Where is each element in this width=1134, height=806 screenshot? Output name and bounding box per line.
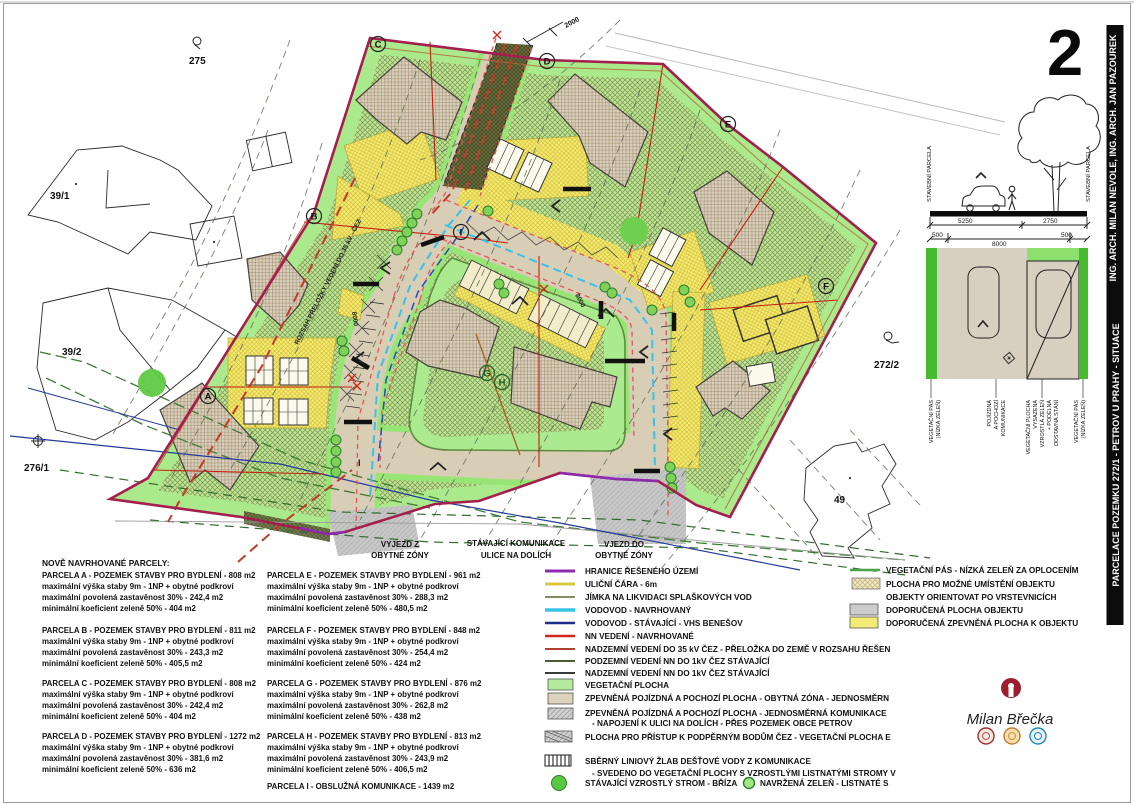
- svg-text:G: G: [483, 369, 490, 380]
- svg-text:VEGETAČNÍ PÁS: VEGETAČNÍ PÁS: [1073, 400, 1080, 443]
- svg-text:(NÍZKÁ ZELEŇ): (NÍZKÁ ZELEŇ): [935, 400, 942, 439]
- svg-text:39/2: 39/2: [62, 347, 82, 358]
- svg-text:VYSAZENÁ: VYSAZENÁ: [1032, 400, 1039, 429]
- svg-text:500: 500: [932, 232, 943, 239]
- svg-text:I: I: [460, 228, 463, 239]
- svg-text:E: E: [725, 120, 731, 131]
- svg-text:H: H: [499, 378, 506, 389]
- svg-text:maximální povolená zastavěnost: maximální povolená zastavěnost 30% - 243…: [42, 648, 224, 657]
- svg-text:NN VEDENÍ - NAVRHOVANÉ: NN VEDENÍ - NAVRHOVANÉ: [585, 631, 694, 641]
- svg-text:POJÍZDNÁ: POJÍZDNÁ: [986, 400, 993, 427]
- svg-text:maximální výška staby 9m - 1NP: maximální výška staby 9m - 1NP + obytné …: [42, 637, 235, 646]
- svg-text:ZPEVNĚNÁ POJÍZDNÁ A POCHOZÍ PL: ZPEVNĚNÁ POJÍZDNÁ A POCHOZÍ PLOCHA - JED…: [585, 707, 887, 718]
- svg-text:maximální povolená zastavěnost: maximální povolená zastavěnost 30% - 243…: [267, 754, 449, 763]
- svg-text:STÁVAJÍCÍ VZROSTLÝ STROM - BŘÍ: STÁVAJÍCÍ VZROSTLÝ STROM - BŘÍZA: [585, 777, 737, 788]
- svg-text:VJEZD DO: VJEZD DO: [604, 540, 644, 549]
- svg-text:SBĚRNÝ LINIOVÝ ŽLAB DEŠŤOVÉ VO: SBĚRNÝ LINIOVÝ ŽLAB DEŠŤOVÉ VODY Z KOMUN…: [585, 755, 811, 766]
- svg-text:- NAPOJENÍ K ULICI NA DOLÍCH -: - NAPOJENÍ K ULICI NA DOLÍCH - PŘES POZE…: [592, 717, 853, 728]
- svg-text:maximální výška staby 9m - 1NP: maximální výška staby 9m - 1NP + obytné …: [267, 637, 460, 646]
- svg-text:PARCELA A - POZEMEK STAVBY PRO: PARCELA A - POZEMEK STAVBY PRO BYDLENÍ -…: [42, 571, 256, 580]
- svg-text:276/1: 276/1: [24, 463, 49, 474]
- svg-text:F: F: [823, 282, 829, 293]
- svg-text:PARCELA G - POZEMEK STAVBY PRO: PARCELA G - POZEMEK STAVBY PRO BYDLENÍ -…: [267, 679, 482, 688]
- svg-text:49: 49: [834, 495, 846, 506]
- svg-text:DOPORUČENÁ PLOCHA OBJEKTU: DOPORUČENÁ PLOCHA OBJEKTU: [886, 604, 1023, 615]
- svg-text:minimální koeficient zeleně 50: minimální koeficient zeleně 50% - 404 m2: [42, 712, 197, 721]
- svg-text:PARCELA I - OBSLUŽNÁ KOMUNIKAC: PARCELA I - OBSLUŽNÁ KOMUNIKACE - 1439 m…: [267, 782, 455, 791]
- svg-text:PARCELA H - POZEMEK STAVBY PRO: PARCELA H - POZEMEK STAVBY PRO BYDLENÍ -…: [267, 732, 482, 741]
- svg-text:minimální koeficient zeleně 50: minimální koeficient zeleně 50% - 438 m2: [267, 712, 422, 721]
- svg-text:maximální výška staby 9m - 1NP: maximální výška staby 9m - 1NP + obytné …: [267, 690, 460, 699]
- svg-text:minimální koeficient zeleně 50: minimální koeficient zeleně 50% - 405,5 …: [42, 659, 203, 668]
- svg-text:PLOCHA PRO PŘÍSTUP K PODPĚRNÝM: PLOCHA PRO PŘÍSTUP K PODPĚRNÝM BODŮM ČEZ…: [585, 731, 891, 742]
- svg-text:500: 500: [1061, 232, 1072, 239]
- svg-text:8000: 8000: [992, 241, 1007, 248]
- svg-text:2750: 2750: [1043, 218, 1058, 225]
- svg-text:maximální výška staby 9m - 1NP: maximální výška staby 9m - 1NP + obytné …: [267, 582, 460, 591]
- svg-text:OBYTNÉ ZÓNY: OBYTNÉ ZÓNY: [595, 551, 653, 560]
- svg-text:I: I: [358, 458, 361, 468]
- svg-text:39/1: 39/1: [50, 191, 70, 202]
- svg-text:VYJEZD Z: VYJEZD Z: [381, 540, 419, 549]
- svg-text:maximální výška staby 9m - 1NP: maximální výška staby 9m - 1NP + obytné …: [42, 690, 235, 699]
- svg-text:minimální koeficient zeleně 50: minimální koeficient zeleně 50% - 424 m2: [267, 659, 422, 668]
- svg-text:272/2: 272/2: [874, 360, 899, 371]
- svg-text:D: D: [544, 57, 551, 68]
- svg-text:maximální povolená zastavěnost: maximální povolená zastavěnost 30% - 262…: [267, 701, 449, 710]
- svg-text:PARCELA D - POZEMEK STAVBY PRO: PARCELA D - POZEMEK STAVBY PRO BYDLENÍ -…: [42, 732, 261, 741]
- svg-text:ZPEVNĚNÁ POJÍZDNÁ A POCHOZÍ PL: ZPEVNĚNÁ POJÍZDNÁ A POCHOZÍ PLOCHA - OBY…: [585, 692, 889, 703]
- svg-text:minimální koeficient zeleně 50: minimální koeficient zeleně 50% - 480,5 …: [267, 604, 428, 613]
- svg-text:2: 2: [1047, 16, 1083, 89]
- svg-text:ULICE NA DOLÍCH: ULICE NA DOLÍCH: [481, 551, 552, 560]
- svg-text:minimální koeficient zeleně 50: minimální koeficient zeleně 50% - 406,5 …: [267, 765, 428, 774]
- svg-text:minimální koeficient zeleně 50: minimální koeficient zeleně 50% - 404 m2: [42, 604, 197, 613]
- svg-text:VEGETAČNÍ PLOCHA: VEGETAČNÍ PLOCHA: [585, 679, 669, 690]
- svg-text:NOVĚ NAVRHOVANÉ PARCELY:: NOVĚ NAVRHOVANÉ PARCELY:: [42, 557, 170, 568]
- svg-text:A POCHOZÍ: A POCHOZÍ: [993, 400, 1000, 430]
- svg-text:PARCELA E - POZEMEK STAVBY PRO: PARCELA E - POZEMEK STAVBY PRO BYDLENÍ -…: [267, 571, 481, 580]
- svg-text:minimální koeficient zeleně 50: minimální koeficient zeleně 50% - 636 m2: [42, 765, 197, 774]
- svg-text:JÍMKA NA LIKVIDACI SPLAŠKOVÝCH: JÍMKA NA LIKVIDACI SPLAŠKOVÝCH VOD: [585, 591, 752, 602]
- svg-text:NAVRŽENÁ ZELEŇ - LISTNATÉ S: NAVRŽENÁ ZELEŇ - LISTNATÉ S: [760, 777, 889, 788]
- svg-text:STAVEBNÍ PARCELA: STAVEBNÍ PARCELA: [926, 146, 933, 202]
- svg-text:PLOCHA PRO MOŽNÉ UMÍSTĚNÍ OBJE: PLOCHA PRO MOŽNÉ UMÍSTĚNÍ OBJEKTU: [886, 578, 1055, 589]
- svg-text:+ PODÉLNÁ: + PODÉLNÁ: [1046, 400, 1053, 431]
- svg-text:VEGETAČNÍ PÁS: VEGETAČNÍ PÁS: [928, 400, 935, 443]
- svg-text:maximální výška staby 9m - 1NP: maximální výška staby 9m - 1NP + obytné …: [267, 743, 460, 752]
- svg-text:275: 275: [189, 56, 206, 67]
- svg-text:- SVEDENO DO VEGETAČNÍ PLOCHY: - SVEDENO DO VEGETAČNÍ PLOCHY S VZROSTLÝ…: [592, 767, 896, 778]
- svg-text:NADZEMNÍ VEDENÍ DO 35 kV ČEZ -: NADZEMNÍ VEDENÍ DO 35 kV ČEZ - PŘELOŽKA …: [585, 643, 890, 654]
- svg-text:Milan Břečka: Milan Břečka: [967, 711, 1054, 728]
- svg-text:maximální povolená zastavěnost: maximální povolená zastavěnost 30% - 242…: [42, 701, 224, 710]
- svg-text:C: C: [375, 40, 382, 51]
- svg-text:ULIČNÍ ČÁRA - 6m: ULIČNÍ ČÁRA - 6m: [585, 578, 657, 589]
- svg-text:PARCELA B - POZEMEK STAVBY PRO: PARCELA B - POZEMEK STAVBY PRO BYDLENÍ -…: [42, 626, 256, 635]
- svg-text:maximální povolená zastavěnost: maximální povolená zastavěnost 30% - 242…: [42, 593, 224, 602]
- svg-text:PARCELA C - POZEMEK STAVBY PRO: PARCELA C - POZEMEK STAVBY PRO BYDLENÍ -…: [42, 679, 257, 688]
- svg-text:maximální povolená zastavěnost: maximální povolená zastavěnost 30% - 254…: [267, 648, 449, 657]
- svg-text:NADZEMNÍ VEDENÍ NN DO 1kV ČEZ: NADZEMNÍ VEDENÍ NN DO 1kV ČEZ STÁVAJÍCÍ: [585, 667, 770, 678]
- svg-text:(NÍZKÁ ZELEŇ): (NÍZKÁ ZELEŇ): [1080, 400, 1087, 439]
- svg-text:A: A: [205, 392, 212, 403]
- svg-text:PODZEMNÍ VEDENÍ NN DO 1kV ČEZ: PODZEMNÍ VEDENÍ NN DO 1kV ČEZ STÁVAJÍCÍ: [585, 655, 770, 666]
- svg-text:PARCELA F - POZEMEK STAVBY PRO: PARCELA F - POZEMEK STAVBY PRO BYDLENÍ -…: [267, 626, 481, 635]
- svg-text:maximální výška staby 9m - 1NP: maximální výška staby 9m - 1NP + obytné …: [42, 743, 235, 752]
- svg-text:HRANICE ŘEŠENÉHO ÚZEMÍ: HRANICE ŘEŠENÉHO ÚZEMÍ: [585, 565, 699, 576]
- svg-text:STÁVAJÍCÍ KOMUNIKACE: STÁVAJÍCÍ KOMUNIKACE: [467, 539, 566, 548]
- svg-text:5250: 5250: [958, 218, 973, 225]
- svg-text:maximální výška staby 9m - 1NP: maximální výška staby 9m - 1NP + obytné …: [42, 582, 235, 591]
- svg-text:VEGETAČNÍ PÁS - NÍZKÁ ZELEŇ ZA: VEGETAČNÍ PÁS - NÍZKÁ ZELEŇ ZA OPLOCENÍM: [886, 564, 1079, 575]
- svg-text:VODOVOD - STÁVAJÍCÍ - VHS BENE: VODOVOD - STÁVAJÍCÍ - VHS BENEŠOV: [585, 617, 743, 628]
- svg-text:VZROSTLÁ ZELEŇ: VZROSTLÁ ZELEŇ: [1039, 400, 1046, 447]
- svg-text:ING. ARCH. MILAN NEVOLE, ING.: ING. ARCH. MILAN NEVOLE, ING. ARCH. JAN …: [1108, 34, 1118, 281]
- svg-text:maximální povolená zastavěnost: maximální povolená zastavěnost 30% - 288…: [267, 593, 449, 602]
- svg-text:STAVEBNÍ PARCELA: STAVEBNÍ PARCELA: [1085, 146, 1092, 202]
- svg-text:B: B: [311, 212, 318, 223]
- svg-text:ODSTAVNÁ STÁNÍ: ODSTAVNÁ STÁNÍ: [1053, 400, 1060, 447]
- svg-text:DOPORUČENÁ ZPEVNĚNÁ PLOCHA K O: DOPORUČENÁ ZPEVNĚNÁ PLOCHA K OBJEKTU: [886, 617, 1078, 628]
- svg-text:maximální povolená zastavěnost: maximální povolená zastavěnost 30% - 381…: [42, 754, 224, 763]
- svg-text:PARCELACE POZEMKU 272/1 - PETR: PARCELACE POZEMKU 272/1 - PETROV U PRAHY…: [1111, 323, 1121, 586]
- svg-text:VEGETAČNÍ PLOCHA: VEGETAČNÍ PLOCHA: [1025, 400, 1032, 455]
- svg-text:KOMUNIKACE: KOMUNIKACE: [1001, 400, 1007, 437]
- svg-text:VODOVOD - NAVRHOVANÝ: VODOVOD - NAVRHOVANÝ: [585, 604, 692, 615]
- svg-text:OBYTNÉ ZÓNY: OBYTNÉ ZÓNY: [371, 551, 429, 560]
- svg-text:OBJEKTY ORIENTOVAT PO VRSTEVNI: OBJEKTY ORIENTOVAT PO VRSTEVNICÍCH: [886, 592, 1057, 602]
